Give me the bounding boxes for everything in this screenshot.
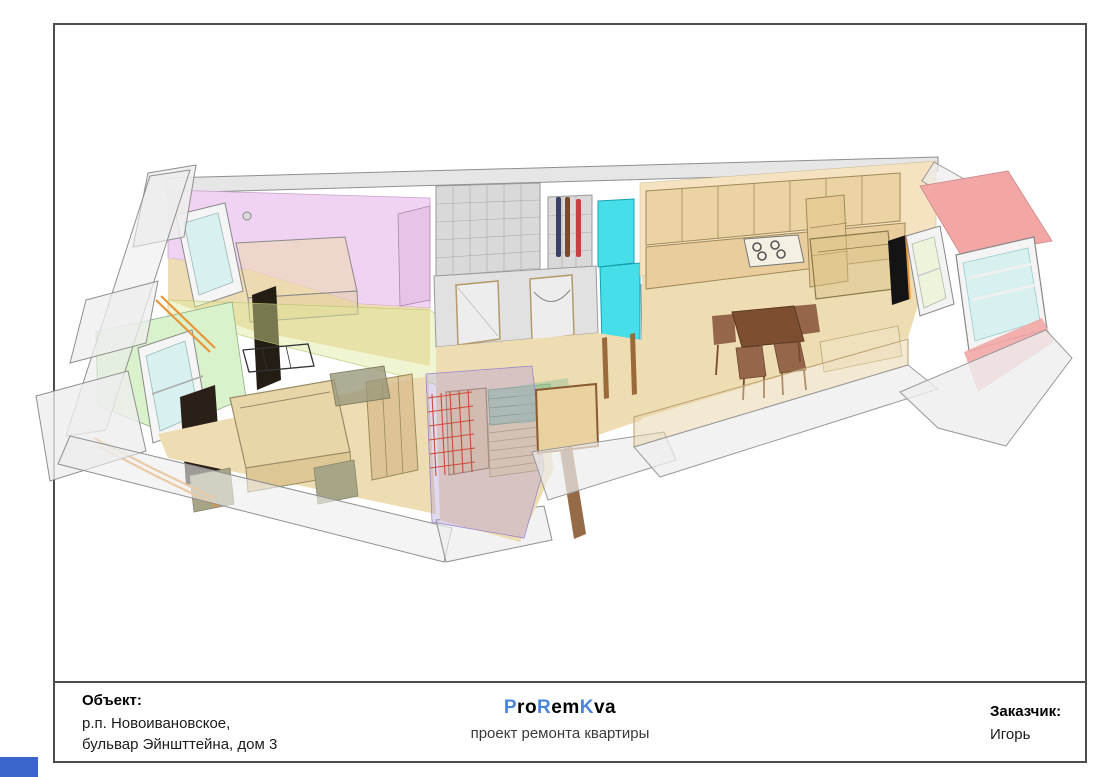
pipe-brown [565,197,570,257]
bathroom-door-2 [530,275,574,341]
brand-part-accent: P [504,697,517,718]
entry-door-opening [536,384,598,453]
brand-part-accent: R [537,697,551,718]
object-address-line2: бульвар Эйншттейна, дом 3 [82,734,277,755]
cooktop [744,235,804,267]
title-block-separator [53,681,1087,683]
apartment-3d-render [0,0,1100,777]
title-block-customer: Заказчик: Игорь [990,700,1061,746]
brand-part-accent: K [580,697,594,718]
object-label: Объект: [82,690,277,711]
sofa-wireframe [810,231,894,299]
project-subtitle: проект ремонта квартиры [300,725,820,742]
cyan-cabinet-lower [600,263,640,345]
bottom-left-blue-box [0,757,38,777]
chair-back-left [712,314,736,345]
cyan-cabinet-upper [598,199,634,267]
brand-part: em [551,697,579,718]
customer-name: Игорь [990,723,1061,746]
brand-part: va [594,697,616,718]
pipe-navy [556,197,561,257]
bed-wireframe-top [236,237,357,298]
ceiling-lamp [243,212,251,220]
title-block-object: Объект: р.п. Новоивановское, бульвар Эйн… [82,690,277,755]
pipe-red [576,199,581,257]
brand-part: ro [517,697,537,718]
title-block-brand: ProRemKva проект ремонта квартиры [300,697,820,742]
bathroom-block [434,183,598,347]
dining-table [732,306,804,347]
bathroom-door-1 [456,281,500,345]
pink-room-wardrobe [398,206,430,306]
brand-logo-text: ProRemKva [300,697,820,719]
customer-label: Заказчик: [990,700,1061,723]
chair-front-right [774,342,806,373]
chair-front-left [736,346,766,379]
object-address-line1: р.п. Новоивановское, [82,713,277,734]
